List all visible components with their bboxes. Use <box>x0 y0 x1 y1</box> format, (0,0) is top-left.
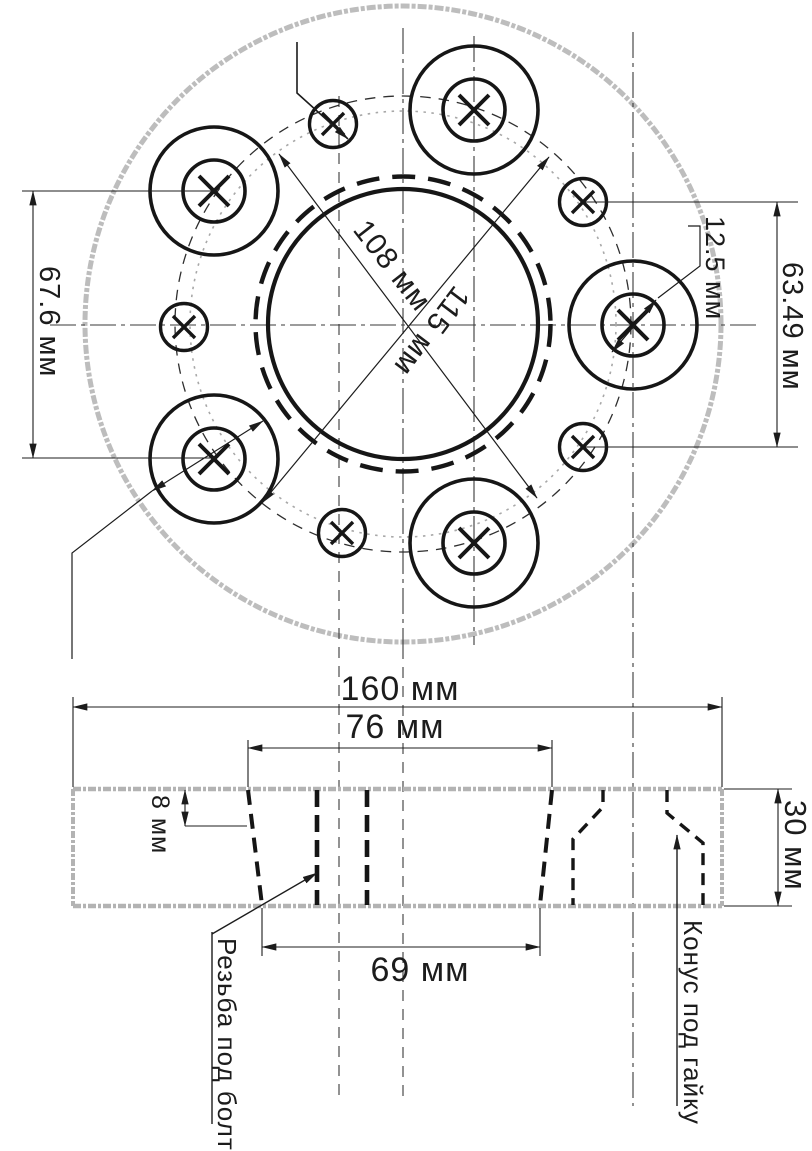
recess-top-label: 76 мм <box>345 708 444 746</box>
scanned-drawing-page: 108 мм 115 мм 67.6 мм 63.49 мм 12.5 мм <box>0 0 812 1151</box>
wheel-adapter-technical-drawing: 108 мм 115 мм 67.6 мм 63.49 мм 12.5 мм <box>0 0 812 1151</box>
recess-bottom-label: 69 мм <box>370 951 469 989</box>
thickness-label: 30 мм <box>778 800 812 891</box>
cone-note-label: Конус под гайку <box>678 920 708 1125</box>
chord-right-label: 63.49 мм <box>776 262 808 391</box>
recess-depth-label: 8 мм <box>146 795 174 854</box>
overall-width-label: 160 мм <box>341 670 460 708</box>
thread-note-label: Резьба под болт <box>212 938 242 1151</box>
bolt-hole-dia-label: 12.5 мм <box>700 216 730 320</box>
chord-left-label: 67.6 мм <box>33 266 65 377</box>
